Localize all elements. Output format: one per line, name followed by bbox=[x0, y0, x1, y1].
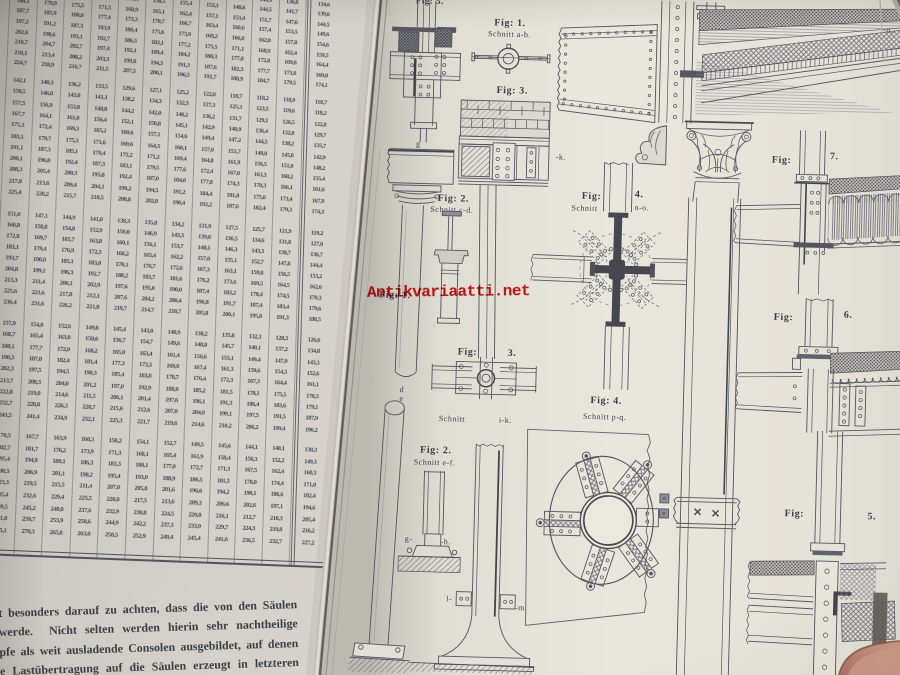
svg-text:Fig: 1.: Fig: 1. bbox=[494, 17, 526, 29]
svg-text:Fig: 3.: Fig: 3. bbox=[496, 85, 528, 97]
svg-text:6.: 6. bbox=[844, 310, 853, 321]
svg-text:Schnitt e-f.: Schnitt e-f. bbox=[414, 457, 456, 467]
svg-text:Schnitt p-q.: Schnitt p-q. bbox=[583, 412, 627, 422]
svg-text:Schnitt a-b.: Schnitt a-b. bbox=[488, 29, 531, 39]
svg-text:n-o.: n-o. bbox=[634, 203, 649, 212]
svg-text:Schnitt: Schnitt bbox=[439, 414, 466, 424]
svg-text:i-k.: i-k. bbox=[499, 416, 512, 425]
svg-text:Fig:: Fig: bbox=[582, 191, 602, 203]
svg-text:Fig:: Fig: bbox=[784, 508, 804, 520]
svg-text:Fig: 2.: Fig: 2. bbox=[438, 193, 470, 205]
svg-text:g-: g- bbox=[405, 534, 413, 543]
svg-text:Fig:: Fig: bbox=[772, 155, 792, 167]
svg-text:l-: l- bbox=[446, 594, 452, 603]
svg-text:-h.: -h. bbox=[441, 537, 451, 546]
svg-text:Fig:: Fig: bbox=[458, 346, 478, 358]
svg-text:Fig:: Fig: bbox=[774, 312, 794, 324]
svg-text:4.: 4. bbox=[635, 189, 644, 200]
svg-text:d: d bbox=[400, 385, 405, 394]
svg-text:3.: 3. bbox=[508, 348, 517, 359]
svg-text:g: g bbox=[416, 139, 421, 148]
svg-text:-k.: -k. bbox=[556, 152, 566, 161]
svg-text:Fig: 2.: Fig: 2. bbox=[420, 445, 452, 457]
svg-text:Fig: 4.: Fig: 4. bbox=[590, 395, 622, 407]
svg-text:Schnitt: Schnitt bbox=[571, 203, 598, 213]
svg-text:5.: 5. bbox=[867, 511, 876, 522]
svg-text:7.: 7. bbox=[830, 151, 839, 162]
svg-text:-o.: -o. bbox=[883, 26, 893, 35]
